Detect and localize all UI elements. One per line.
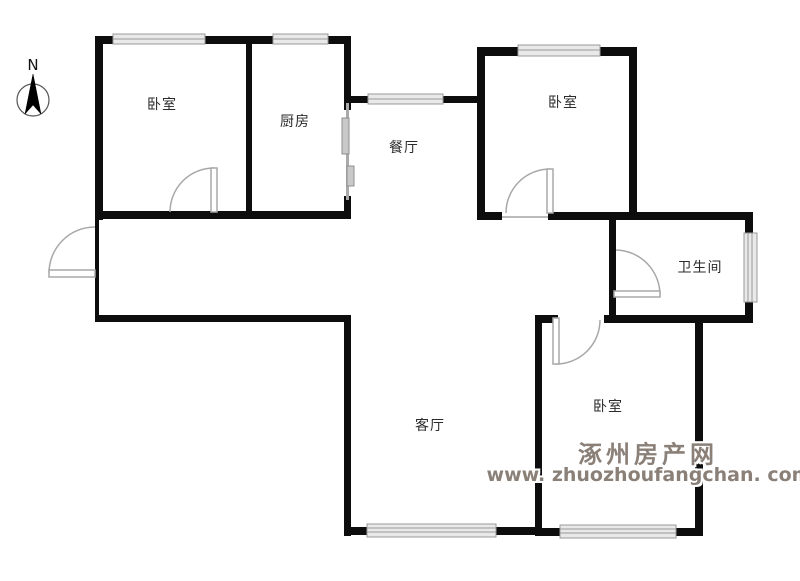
room-label-kitchen: 厨房 [280, 111, 310, 131]
floor-plan-drawing [0, 0, 800, 581]
wall [477, 212, 502, 220]
room-label-bedroom-bottom: 卧室 [593, 396, 623, 416]
door-leaf [547, 169, 553, 213]
door-swing-arc [556, 320, 600, 364]
door-leaf [614, 291, 660, 297]
door-leaf [211, 168, 217, 212]
sliding-door-kitchen [342, 103, 354, 200]
window-bedroom2-top [518, 45, 600, 56]
wall [344, 315, 351, 536]
window-living-bottom [367, 524, 496, 537]
wall [95, 36, 103, 220]
door-bedroom3 [553, 318, 600, 364]
door-bedroom2 [506, 169, 553, 213]
compass-icon [17, 74, 49, 116]
doors [49, 168, 660, 364]
window-kitchen-top [273, 34, 328, 44]
window-bedroom3-bottom [560, 525, 676, 538]
room-label-bedroom-top-left: 卧室 [147, 94, 177, 114]
wall [548, 212, 753, 220]
door-bathroom [614, 250, 660, 297]
door-swing-arc [170, 168, 214, 212]
door-leaf [49, 270, 95, 277]
wall [95, 211, 351, 219]
door-threshold [502, 216, 548, 218]
door-swing-arc [49, 227, 95, 273]
wall [609, 220, 616, 322]
room-label-bedroom-top-right: 卧室 [548, 92, 578, 112]
door-bedroom1 [170, 168, 217, 212]
compass-north-label: N [27, 56, 38, 74]
window-bathroom-right [744, 233, 757, 302]
wall [95, 315, 351, 322]
window-bedroom1-top [113, 34, 205, 44]
door-swing-arc [616, 250, 660, 295]
wall [629, 47, 637, 220]
window-dining [368, 94, 443, 104]
wall [535, 315, 542, 536]
watermark-site-url: www. zhuozhoufangchan. com [487, 464, 800, 486]
wall [695, 315, 703, 536]
room-label-living-room: 客厅 [415, 415, 445, 435]
door-leaf [553, 318, 559, 364]
room-label-dining: 餐厅 [389, 137, 419, 157]
door-swing-arc [506, 169, 550, 213]
wall [477, 47, 485, 220]
floor-plan-canvas: N 卧室 厨房 餐厅 卧室 卫生间 客厅 卧室 涿州房产网 www. zhuoz… [0, 0, 800, 581]
door-entry [49, 227, 95, 277]
wall [246, 36, 252, 218]
room-label-bathroom: 卫生间 [678, 257, 723, 277]
wall [604, 315, 753, 323]
